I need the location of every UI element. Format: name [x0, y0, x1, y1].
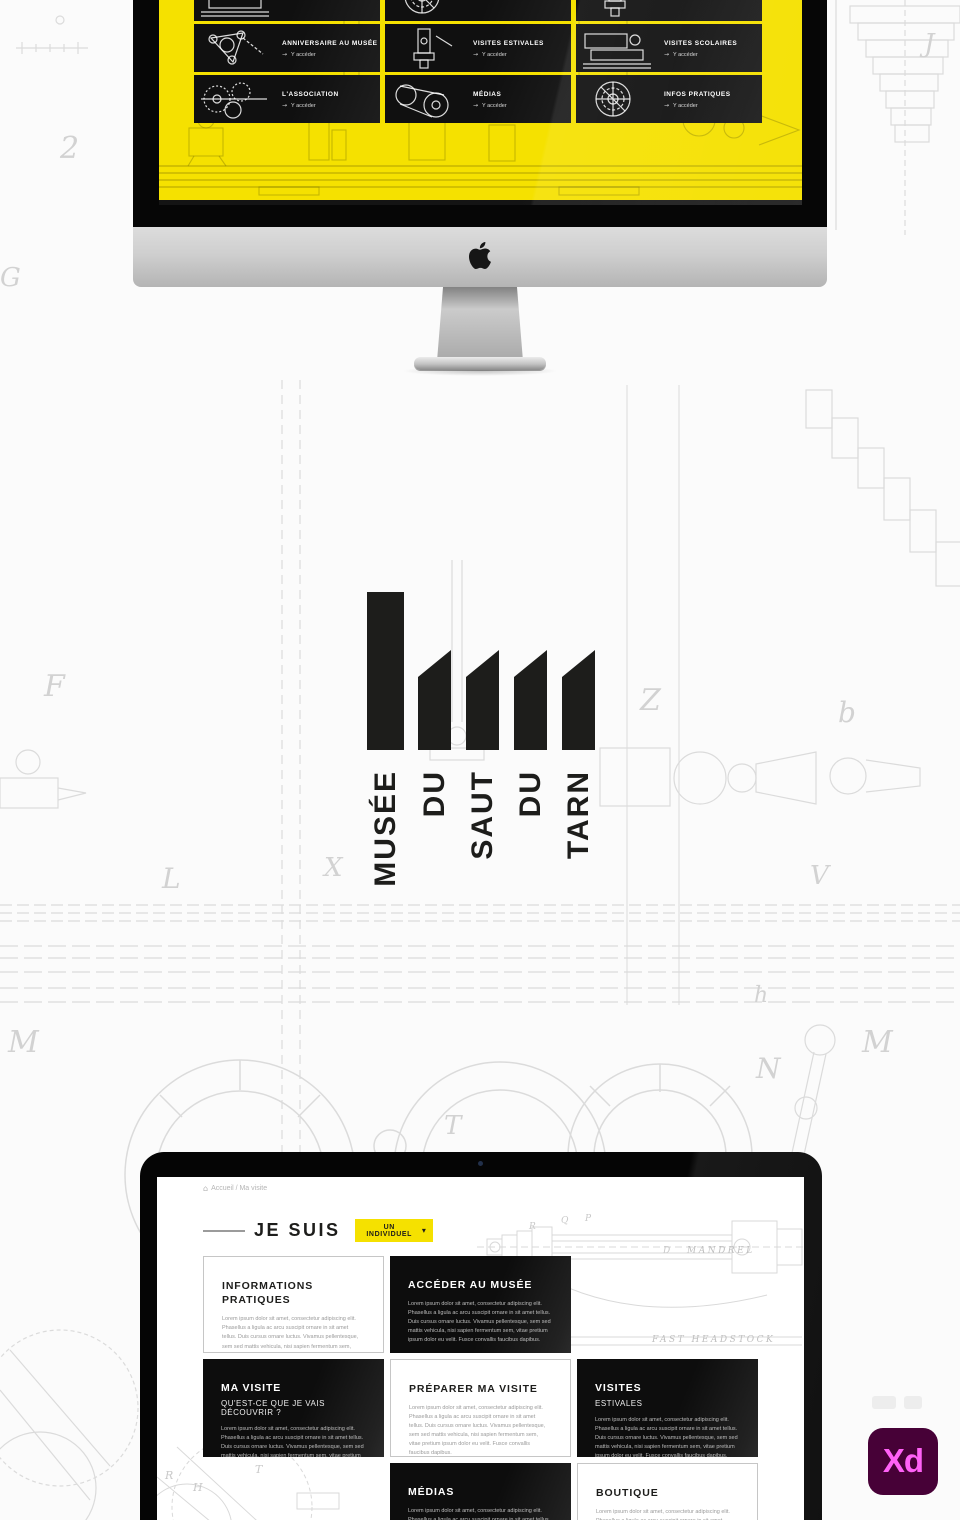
- tile-row-3: L'ASSOCIATION →Y accéder MÉDIAS →Y accéd…: [194, 75, 762, 123]
- tile-2[interactable]: →Y accéder: [385, 0, 571, 21]
- drawing-letter: H: [192, 1481, 203, 1494]
- tile-title: INFOS PRATIQUES: [664, 91, 760, 98]
- bg-letter: L: [161, 862, 181, 895]
- tile-row-2: ANNIVERSAIRE AU MUSÉE →Y accéder VISITES…: [194, 24, 762, 72]
- logo-roof-bar: [562, 650, 595, 750]
- arrow-icon: →: [282, 51, 287, 58]
- card-title: INFORMATIONS PRATIQUES: [222, 1279, 354, 1307]
- musee-saut-du-tarn-logo: MUSÉE DU SAUT DU TARN: [367, 592, 599, 952]
- tile-visites-scolaires[interactable]: VISITES SCOLAIRES →Y accéder: [576, 24, 762, 72]
- card-preparer-ma-visite[interactable]: PRÉPARER MA VISITE Lorem ipsum dolor sit…: [390, 1359, 571, 1457]
- card-acceder-au-musee[interactable]: ACCÉDER AU MUSÉE Lorem ipsum dolor sit a…: [390, 1256, 571, 1353]
- tile-link[interactable]: →Y accéder: [473, 102, 569, 109]
- breadcrumb-text: Accueil / Ma visite: [211, 1185, 267, 1192]
- chevron-down-icon: ▾: [422, 1226, 427, 1235]
- tile-title: L'ASSOCIATION: [282, 91, 378, 98]
- tile-illustration: [579, 26, 659, 70]
- logo-chimney-bar: [367, 592, 404, 750]
- card-title: VISITES: [595, 1381, 740, 1395]
- tile-illustration: [388, 26, 468, 70]
- tile-infos-pratiques[interactable]: INFOS PRATIQUES →Y accéder: [576, 75, 762, 123]
- bg-letter: 2: [59, 131, 79, 166]
- logo-word: TARN: [562, 770, 595, 859]
- card-subtitle: ESTIVALES: [595, 1399, 740, 1408]
- imac-stand-neck: [437, 287, 523, 361]
- drawing-label-mandrel: MANDREL: [686, 1246, 755, 1256]
- card-informations-pratiques[interactable]: INFORMATIONS PRATIQUES Lorem ipsum dolor…: [203, 1256, 384, 1353]
- bg-letter: b: [838, 696, 856, 729]
- card-body: Lorem ipsum dolor sit amet, consectetur …: [409, 1404, 552, 1457]
- laptop-screen: R Q P D R H T MANDREL FAST HEADSTOCK ⌂ A…: [157, 1177, 804, 1520]
- card-body: Lorem ipsum dolor sit amet, consectetur …: [408, 1300, 553, 1345]
- card-boutique[interactable]: BOUTIQUE Lorem ipsum dolor sit amet, con…: [577, 1463, 758, 1520]
- tile-link[interactable]: →Y accéder: [282, 102, 378, 109]
- logo-word: SAUT: [466, 770, 499, 860]
- bg-letter: M: [861, 1025, 894, 1060]
- tile-3[interactable]: →Y accéder: [576, 0, 762, 21]
- logo-roof-bar: [418, 650, 451, 750]
- card-title: PRÉPARER MA VISITE: [409, 1382, 552, 1396]
- audience-selector-dropdown[interactable]: UN INDIVIDUEL ▾: [355, 1219, 433, 1242]
- logo-word: DU: [514, 770, 547, 817]
- tile-illustration: [197, 0, 277, 18]
- tile-association[interactable]: L'ASSOCIATION →Y accéder: [194, 75, 380, 123]
- card-body: Lorem ipsum dolor sit amet, consectetur …: [408, 1507, 553, 1520]
- card-title: MÉDIAS: [408, 1485, 553, 1499]
- card-title: BOUTIQUE: [596, 1486, 739, 1500]
- page-heading-group: JE SUIS UN INDIVIDUEL ▾: [203, 1219, 433, 1242]
- home-icon: ⌂: [203, 1185, 208, 1192]
- adobe-xd-label: Xd: [883, 1442, 923, 1480]
- card-medias[interactable]: MÉDIAS Lorem ipsum dolor sit amet, conse…: [390, 1463, 571, 1520]
- camera-dot: [478, 1161, 483, 1166]
- arrow-icon: →: [664, 51, 669, 58]
- tile-illustration: [388, 0, 468, 18]
- bg-letter: h: [754, 983, 768, 1008]
- drawing-letter: D: [662, 1246, 670, 1256]
- tile-title: VISITES ESTIVALES: [473, 40, 569, 47]
- tile-title: MÉDIAS: [473, 91, 569, 98]
- tile-illustration: [197, 26, 277, 70]
- apple-logo-icon: [469, 242, 491, 269]
- logo-roof-bar: [466, 650, 499, 750]
- drawing-letter: Q: [561, 1216, 569, 1226]
- imac-chin: [133, 227, 827, 287]
- imac-screen: →Y accéder →Y accéder →Y accéder: [159, 0, 802, 205]
- logo-word: MUSÉE: [369, 770, 402, 887]
- bg-letter: M: [7, 1025, 40, 1060]
- arrow-icon: →: [473, 51, 478, 58]
- card-body: Lorem ipsum dolor sit amet, consectetur …: [595, 1416, 740, 1457]
- drawing-letter: P: [584, 1214, 592, 1224]
- screen-footer-strip: [159, 200, 802, 205]
- tile-link[interactable]: →Y accéder: [282, 51, 378, 58]
- tile-link[interactable]: →Y accéder: [664, 51, 760, 58]
- arrow-icon: →: [664, 102, 669, 109]
- drawing-letter: R: [164, 1469, 173, 1482]
- tile-medias[interactable]: MÉDIAS →Y accéder: [385, 75, 571, 123]
- tile-illustration: [579, 0, 659, 18]
- breadcrumb[interactable]: ⌂ Accueil / Ma visite: [203, 1185, 267, 1192]
- card-body: Lorem ipsum dolor sit amet, consectetur …: [222, 1315, 365, 1353]
- arrow-icon: →: [473, 102, 478, 109]
- drawing-letter: R: [528, 1222, 536, 1232]
- logo-roof-bar: [514, 650, 547, 750]
- bg-letter: J: [919, 29, 936, 59]
- tile-visites-estivales[interactable]: VISITES ESTIVALES →Y accéder: [385, 24, 571, 72]
- heading-rule: [203, 1230, 245, 1232]
- logo-word: DU: [418, 770, 451, 817]
- tile-link[interactable]: →Y accéder: [664, 102, 760, 109]
- bg-letter: N: [755, 1052, 782, 1085]
- card-title: MA VISITE: [221, 1381, 366, 1395]
- bg-letter: G: [0, 263, 21, 293]
- bg-letter: Z: [639, 683, 662, 718]
- card-subtitle: QU'EST-CE QUE JE VAIS DÉCOUVRIR ?: [221, 1399, 366, 1417]
- bg-letter: F: [43, 669, 66, 704]
- tile-row-1: →Y accéder →Y accéder →Y accéder: [194, 0, 762, 21]
- tile-anniversaire[interactable]: ANNIVERSAIRE AU MUSÉE →Y accéder: [194, 24, 380, 72]
- homepage-tile-grid: →Y accéder →Y accéder →Y accéder: [194, 0, 762, 126]
- tile-link[interactable]: →Y accéder: [473, 51, 569, 58]
- card-body: Lorem ipsum dolor sit amet, consectetur …: [221, 1425, 366, 1457]
- tile-title: VISITES SCOLAIRES: [664, 40, 760, 47]
- tile-illustration: [197, 77, 277, 121]
- card-visites-estivales[interactable]: VISITES ESTIVALES Lorem ipsum dolor sit …: [577, 1359, 758, 1457]
- adobe-xd-badge: Xd: [868, 1428, 938, 1495]
- arrow-icon: →: [282, 102, 287, 109]
- bg-letter: X: [322, 853, 344, 883]
- imac-stand-base: [414, 357, 546, 370]
- page-title: JE SUIS: [254, 1220, 341, 1241]
- tile-illustration: [388, 77, 468, 121]
- tile-1[interactable]: →Y accéder: [194, 0, 380, 21]
- cards-grid: INFORMATIONS PRATIQUES Lorem ipsum dolor…: [203, 1256, 758, 1520]
- card-title: ACCÉDER AU MUSÉE: [408, 1278, 553, 1292]
- tile-illustration: [579, 77, 659, 121]
- bg-letter: T: [444, 1111, 463, 1141]
- bg-letter: V: [810, 861, 831, 891]
- artboard: 2 G J F L X Z b V M M N T h: [0, 0, 960, 1520]
- card-body: Lorem ipsum dolor sit amet, consectetur …: [596, 1508, 739, 1520]
- tile-title: ANNIVERSAIRE AU MUSÉE: [282, 40, 378, 47]
- card-ma-visite[interactable]: MA VISITE QU'EST-CE QUE JE VAIS DÉCOUVRI…: [203, 1359, 384, 1457]
